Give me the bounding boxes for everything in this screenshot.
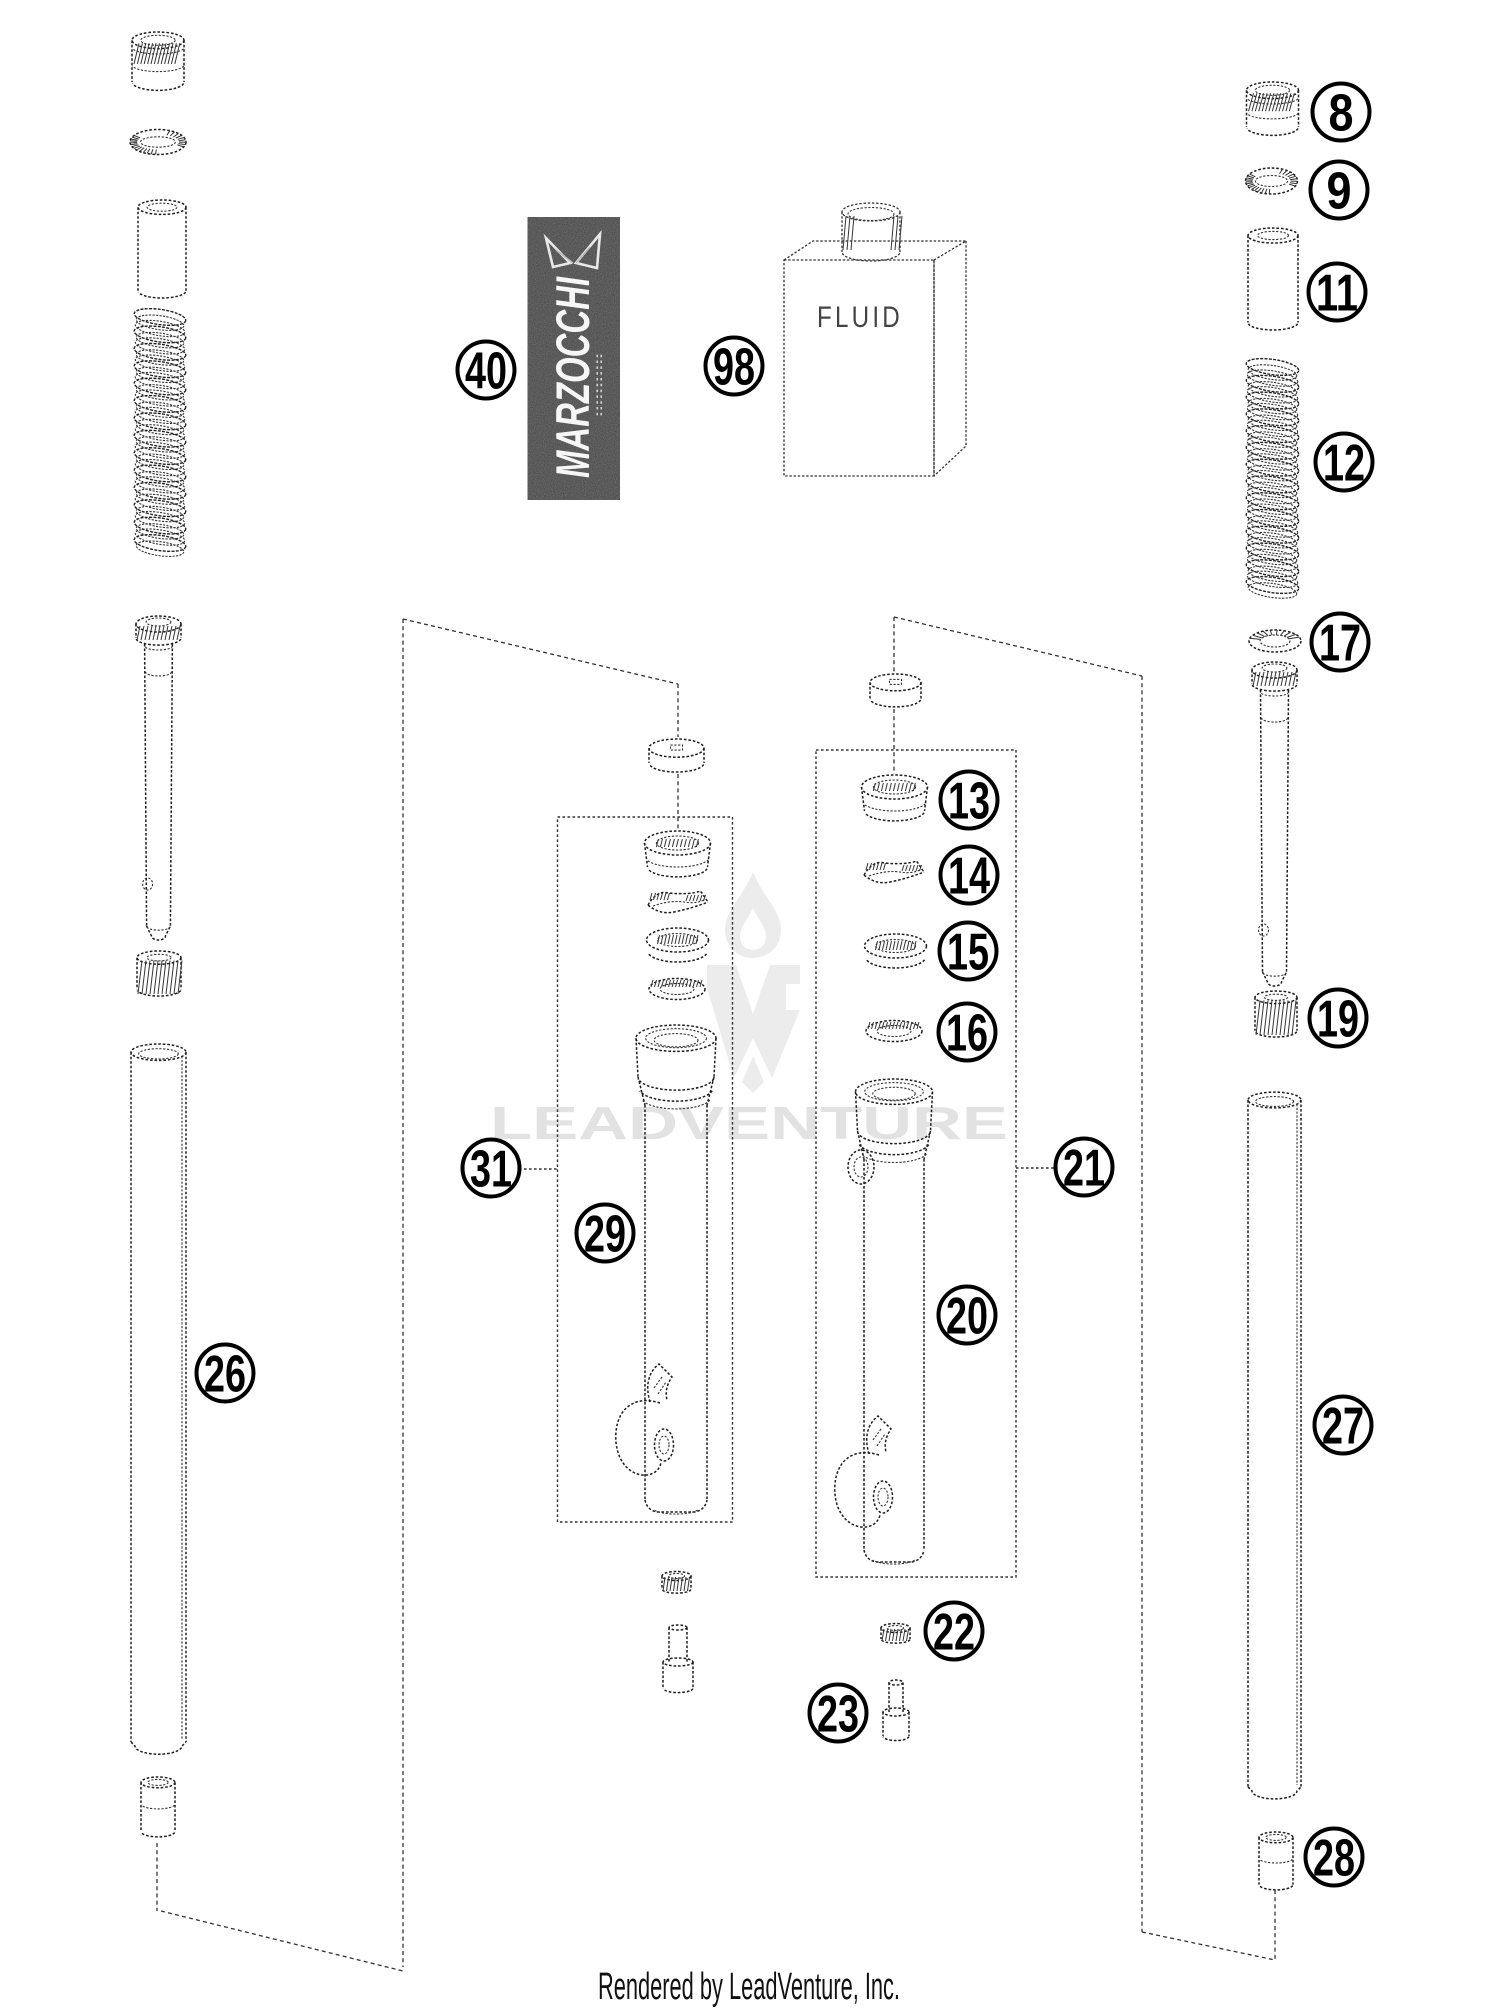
svg-text:17: 17 — [1319, 615, 1361, 673]
svg-text:28: 28 — [1313, 1830, 1355, 1888]
svg-text:16: 16 — [946, 1005, 988, 1063]
svg-text:9: 9 — [1327, 163, 1352, 221]
svg-text:20: 20 — [946, 1288, 988, 1346]
svg-text:31: 31 — [470, 1141, 512, 1199]
svg-text::::::::::::: ::::::::::: — [593, 353, 605, 417]
svg-text:FLUID: FLUID — [817, 301, 903, 334]
svg-text:29: 29 — [584, 1206, 626, 1264]
svg-text:14: 14 — [948, 848, 990, 906]
svg-text:26: 26 — [204, 1346, 246, 1404]
svg-text:MARZOCCHI: MARZOCCHI — [546, 276, 599, 478]
svg-text:8: 8 — [1329, 85, 1354, 143]
svg-text:Rendered by LeadVenture, Inc.: Rendered by LeadVenture, Inc. — [598, 1966, 900, 2007]
svg-text:11: 11 — [1316, 265, 1358, 323]
svg-text:13: 13 — [948, 773, 990, 831]
svg-text:15: 15 — [947, 924, 989, 982]
svg-text:23: 23 — [817, 1686, 859, 1744]
svg-text:12: 12 — [1323, 435, 1365, 493]
svg-text:22: 22 — [933, 1604, 975, 1662]
svg-text:19: 19 — [1317, 991, 1359, 1049]
svg-text:21: 21 — [1063, 1140, 1105, 1198]
svg-text:LEADVENTURE: LEADVENTURE — [490, 1097, 1008, 1149]
svg-text:40: 40 — [465, 343, 507, 401]
svg-text:27: 27 — [1322, 1398, 1364, 1456]
svg-text:98: 98 — [713, 339, 755, 397]
